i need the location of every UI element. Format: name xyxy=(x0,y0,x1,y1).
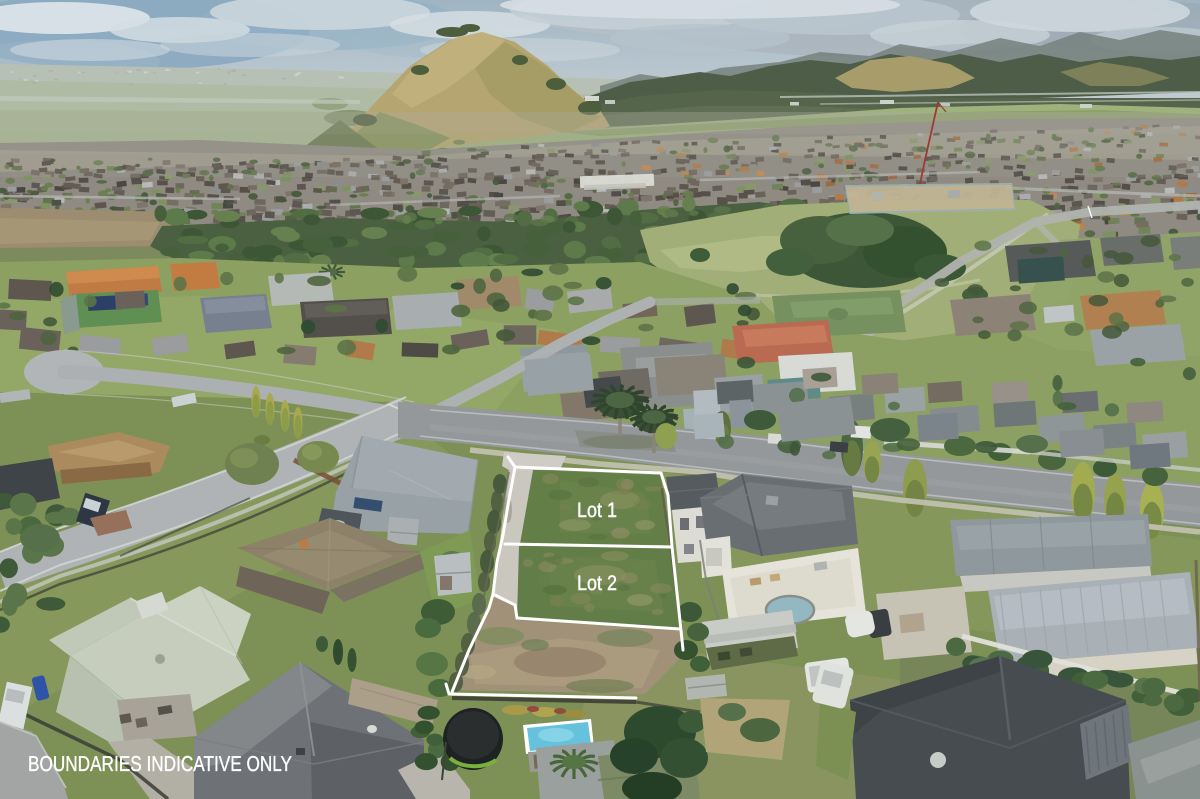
svg-text:BOUNDARIES INDICATIVE ONLY: BOUNDARIES INDICATIVE ONLY xyxy=(28,752,292,776)
svg-text:Lot 2: Lot 2 xyxy=(577,572,617,595)
svg-text:Lot 1: Lot 1 xyxy=(577,499,617,522)
